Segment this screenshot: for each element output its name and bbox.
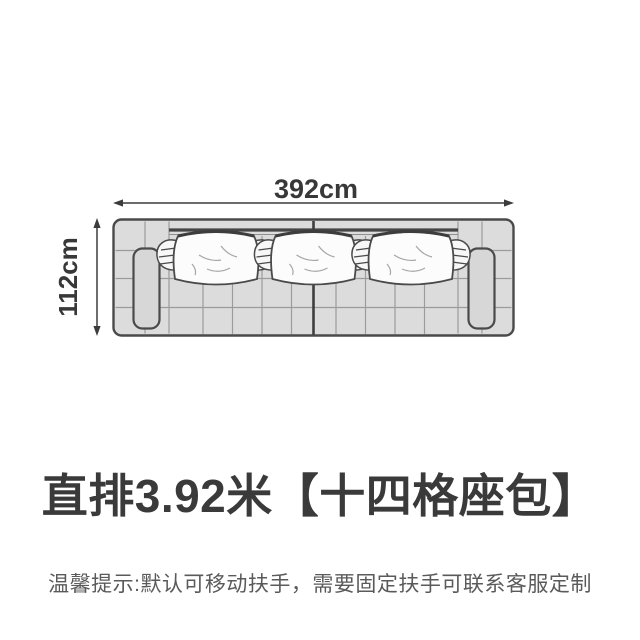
width-dimension-label: 392cm <box>274 174 358 204</box>
width-arrow-left-icon <box>113 199 123 206</box>
depth-arrow-bottom-icon <box>93 326 100 336</box>
width-arrow-right-icon <box>504 199 514 206</box>
depth-arrow-top-icon <box>93 218 100 228</box>
sofa-dimension-diagram: 392cm 112cm <box>0 0 640 370</box>
left-armrest-cushion <box>134 249 160 329</box>
sofa-top-view <box>114 220 514 336</box>
depth-dimension: 112cm <box>53 218 101 336</box>
right-armrest-cushion <box>469 249 495 329</box>
depth-dimension-label: 112cm <box>53 237 83 317</box>
width-dimension: 392cm <box>113 174 514 207</box>
product-title: 直排3.92米【十四格座包】 <box>0 460 640 526</box>
customization-note: 温馨提示:默认可移动扶手，需要固定扶手可联系客服定制 <box>0 568 640 598</box>
product-image-canvas: 392cm 112cm <box>0 0 640 640</box>
